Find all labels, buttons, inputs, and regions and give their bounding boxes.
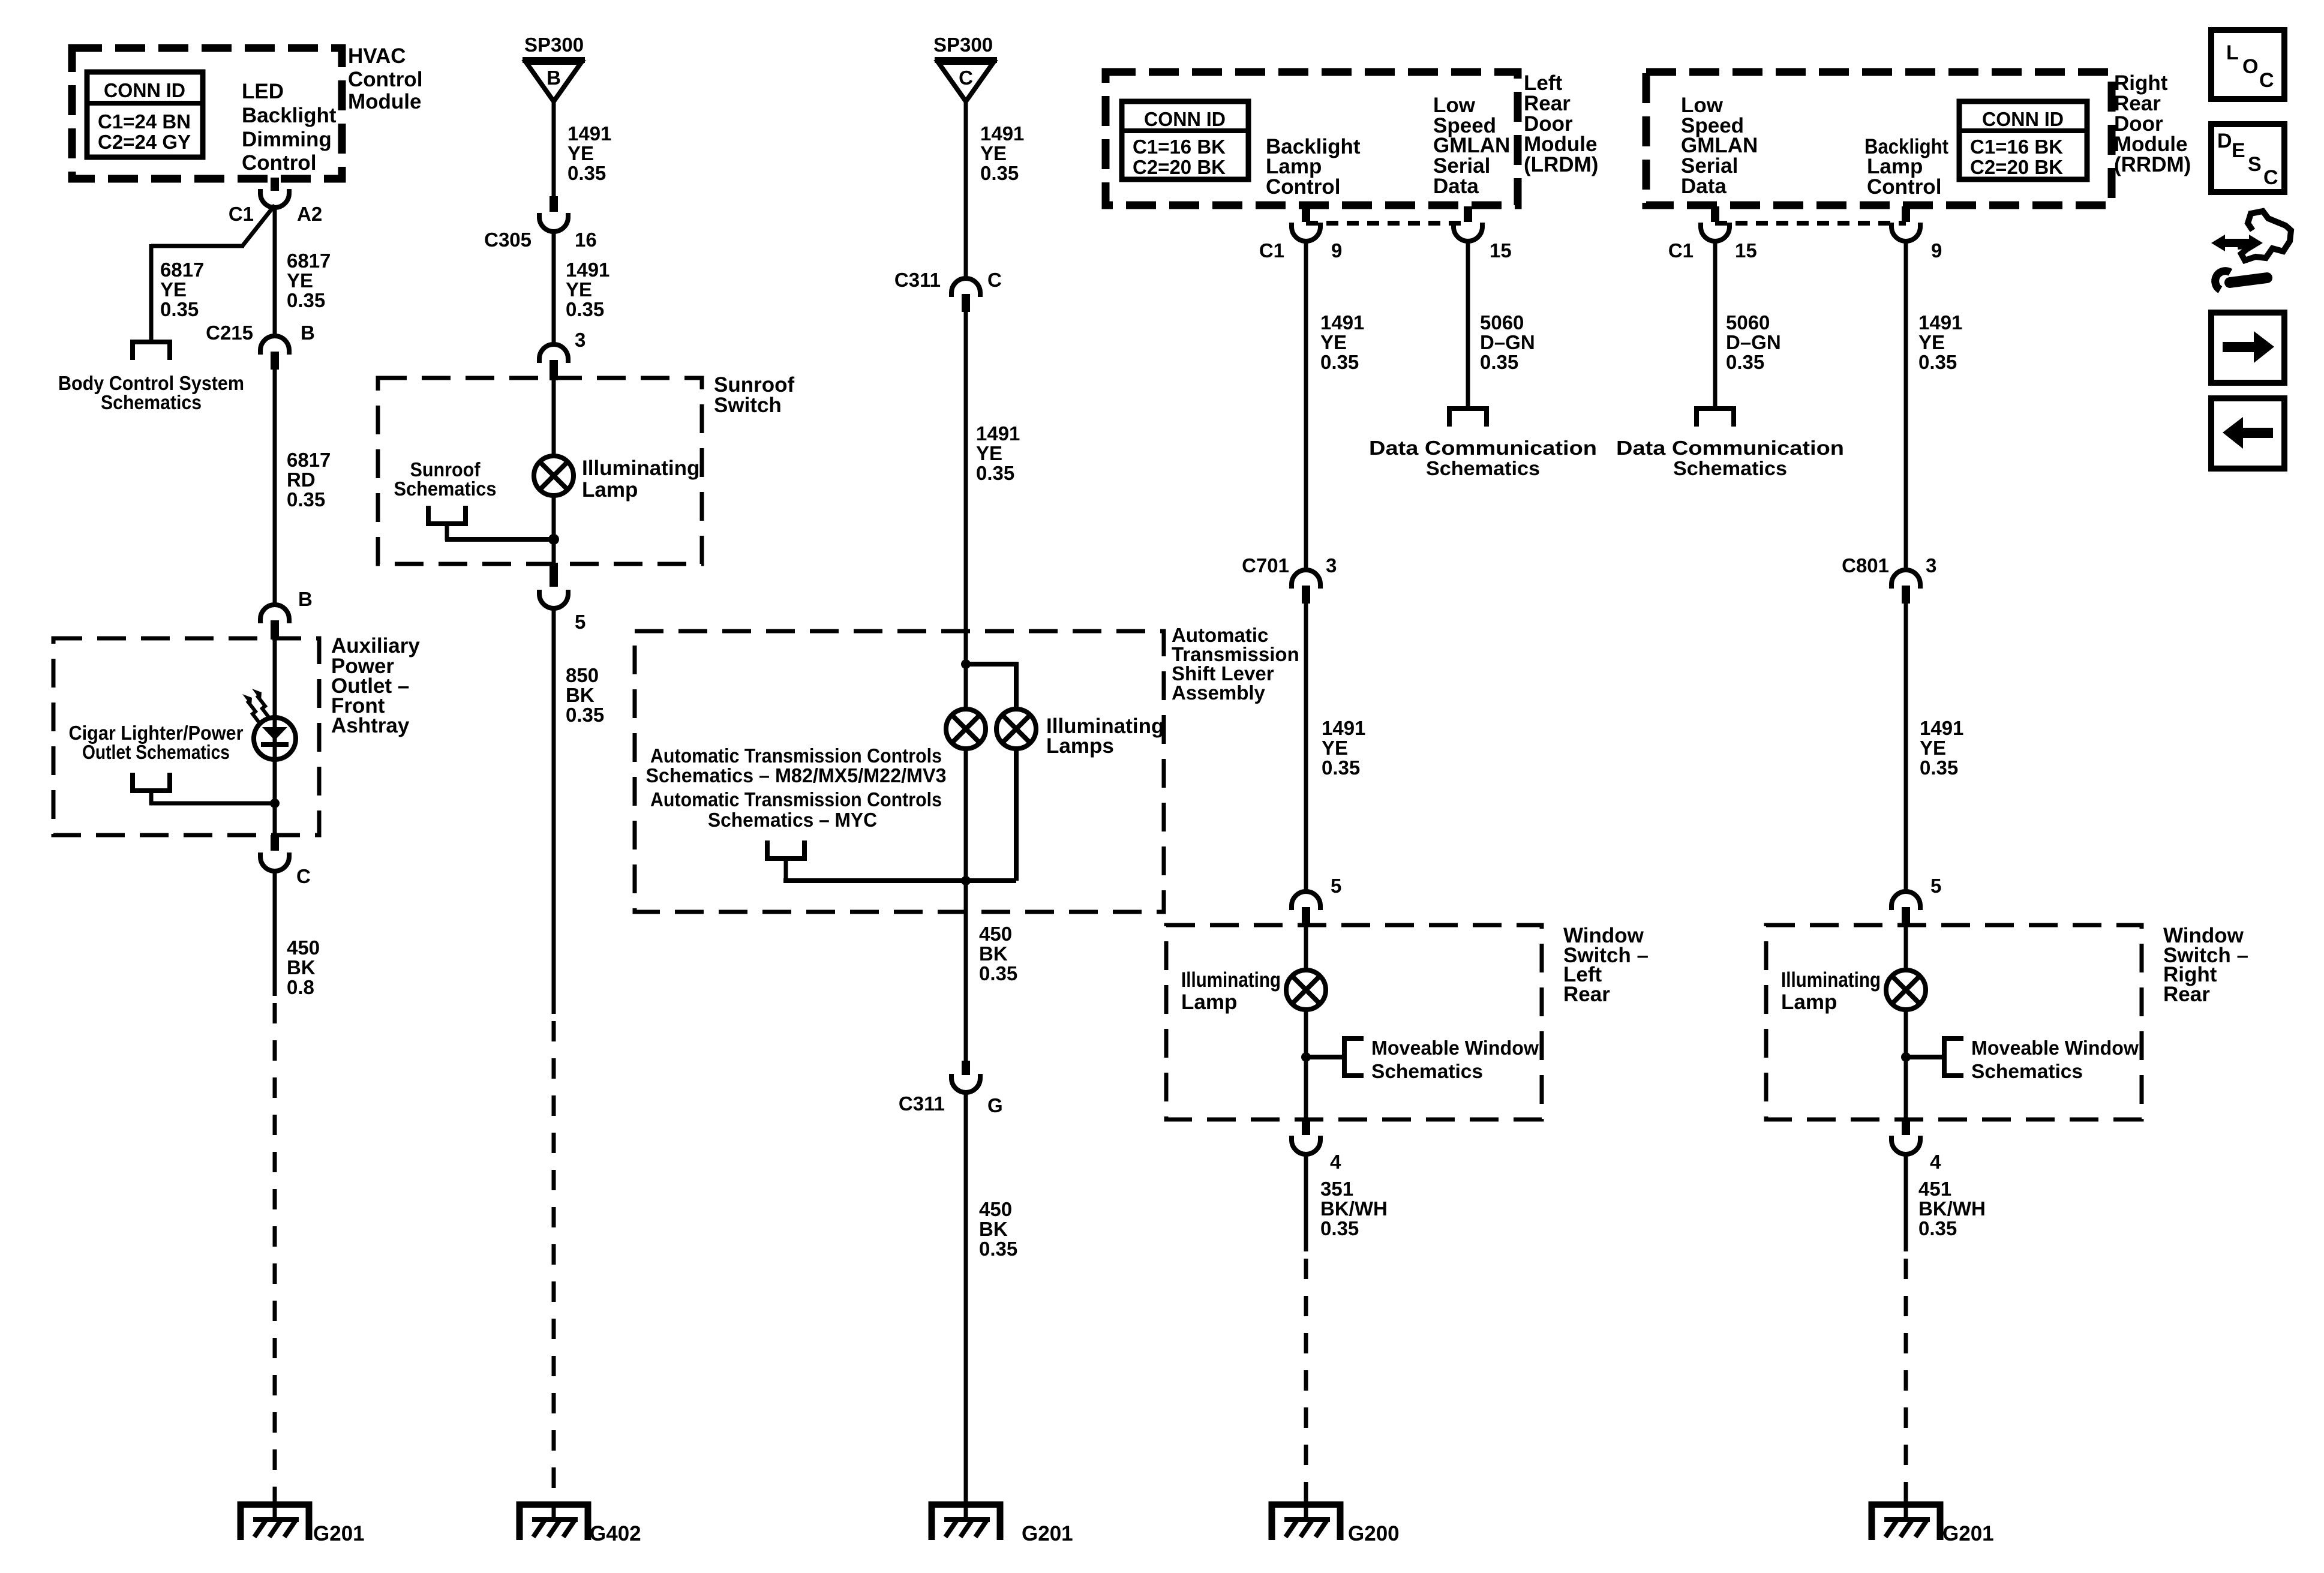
svg-text:Schematics – M82/MX5/M22/MV3: Schematics – M82/MX5/M22/MV3 xyxy=(646,764,947,786)
svg-text:1491: 1491 xyxy=(568,122,611,145)
svg-text:SP300: SP300 xyxy=(933,34,993,56)
svg-text:Moveable Window: Moveable Window xyxy=(1371,1037,1539,1059)
svg-text:C1=16 BK: C1=16 BK xyxy=(1970,136,2063,158)
svg-text:G402: G402 xyxy=(590,1522,641,1545)
svg-text:0.35: 0.35 xyxy=(287,488,325,511)
svg-text:G: G xyxy=(987,1094,1003,1116)
svg-text:0.35: 0.35 xyxy=(1480,351,1518,373)
svg-text:Assembly: Assembly xyxy=(1172,682,1266,704)
svg-text:BK: BK xyxy=(287,956,316,978)
svg-text:Outlet Schematics: Outlet Schematics xyxy=(82,741,230,763)
svg-text:LED: LED xyxy=(242,80,284,103)
svg-text:Module: Module xyxy=(348,90,421,113)
svg-text:YE: YE xyxy=(1320,331,1347,353)
svg-text:BK: BK xyxy=(979,1218,1008,1240)
svg-text:1491: 1491 xyxy=(980,122,1024,145)
svg-text:C: C xyxy=(2259,69,2274,92)
svg-text:C: C xyxy=(2263,166,2278,189)
svg-text:1491: 1491 xyxy=(1322,717,1365,739)
svg-text:G201: G201 xyxy=(313,1522,365,1545)
svg-text:BK: BK xyxy=(979,942,1008,965)
svg-text:6817: 6817 xyxy=(160,259,204,281)
svg-text:BK/WH: BK/WH xyxy=(1918,1197,1986,1220)
svg-text:Control: Control xyxy=(348,68,422,91)
svg-text:0.35: 0.35 xyxy=(160,298,199,320)
svg-text:6817: 6817 xyxy=(287,250,331,272)
svg-text:5060: 5060 xyxy=(1726,311,1770,334)
svg-text:16: 16 xyxy=(575,229,597,251)
svg-text:C1=16 BK: C1=16 BK xyxy=(1133,136,1226,158)
svg-text:0.35: 0.35 xyxy=(568,162,606,184)
svg-text:Control: Control xyxy=(1867,175,1941,199)
svg-text:C2=24 GY: C2=24 GY xyxy=(98,131,191,153)
svg-text:9: 9 xyxy=(1931,239,1942,262)
svg-text:Illuminating: Illuminating xyxy=(582,457,699,480)
svg-text:B: B xyxy=(301,322,315,344)
svg-text:450: 450 xyxy=(979,1198,1012,1220)
svg-text:Control: Control xyxy=(242,151,316,175)
svg-text:CONN ID: CONN ID xyxy=(104,79,185,101)
svg-text:C: C xyxy=(959,67,973,89)
svg-text:L: L xyxy=(2226,41,2239,64)
svg-text:YE: YE xyxy=(976,442,1002,464)
svg-text:0.35: 0.35 xyxy=(1322,757,1360,779)
svg-text:YE: YE xyxy=(566,278,592,301)
svg-text:O: O xyxy=(2242,55,2258,78)
svg-text:Schematics: Schematics xyxy=(1371,1060,1483,1082)
svg-text:C1: C1 xyxy=(229,203,254,225)
svg-text:C2=20 BK: C2=20 BK xyxy=(1970,156,2063,178)
svg-text:C1: C1 xyxy=(1668,239,1694,262)
svg-text:G200: G200 xyxy=(1348,1522,1400,1545)
svg-text:YE: YE xyxy=(287,269,313,292)
svg-text:0.35: 0.35 xyxy=(1726,351,1764,373)
svg-text:0.35: 0.35 xyxy=(1918,1217,1957,1239)
svg-text:Schematics: Schematics xyxy=(1426,457,1540,479)
svg-text:S: S xyxy=(2248,153,2262,176)
svg-text:Switch: Switch xyxy=(714,394,782,417)
svg-text:Schematics: Schematics xyxy=(1971,1060,2083,1082)
svg-text:Schematics: Schematics xyxy=(101,391,202,413)
svg-text:0.35: 0.35 xyxy=(1320,1217,1359,1239)
svg-text:G201: G201 xyxy=(1022,1522,1073,1545)
svg-text:0.8: 0.8 xyxy=(287,976,314,998)
svg-text:Schematics: Schematics xyxy=(394,478,497,500)
svg-text:450: 450 xyxy=(287,936,320,959)
svg-text:Ashtray: Ashtray xyxy=(331,714,410,737)
svg-text:1491: 1491 xyxy=(566,259,609,281)
svg-text:C1: C1 xyxy=(1259,239,1284,262)
svg-text:B: B xyxy=(547,67,561,89)
svg-text:C311: C311 xyxy=(894,269,941,291)
svg-text:5: 5 xyxy=(575,611,585,633)
svg-text:Illuminating: Illuminating xyxy=(1181,968,1281,992)
svg-text:0.35: 0.35 xyxy=(979,962,1017,984)
svg-text:C1=24 BN: C1=24 BN xyxy=(98,110,191,133)
svg-text:1491: 1491 xyxy=(1918,311,1962,334)
svg-text:CONN ID: CONN ID xyxy=(1982,108,2064,130)
svg-text:850: 850 xyxy=(566,664,599,686)
svg-text:Dimming: Dimming xyxy=(242,128,332,151)
svg-text:Rear: Rear xyxy=(1563,983,1610,1006)
svg-text:Automatic Transmission Control: Automatic Transmission Controls xyxy=(650,788,942,810)
svg-text:C801: C801 xyxy=(1842,554,1889,577)
svg-text:Automatic Transmission Control: Automatic Transmission Controls xyxy=(650,745,942,767)
svg-text:YE: YE xyxy=(980,142,1007,164)
svg-text:Lamp: Lamp xyxy=(1781,990,1837,1014)
svg-text:YE: YE xyxy=(160,278,187,301)
svg-text:YE: YE xyxy=(1322,737,1348,759)
svg-text:450: 450 xyxy=(979,923,1012,945)
svg-text:0.35: 0.35 xyxy=(566,704,604,726)
svg-text:0.35: 0.35 xyxy=(1920,757,1958,779)
svg-text:C305: C305 xyxy=(484,229,532,251)
svg-text:D–GN: D–GN xyxy=(1726,331,1781,353)
svg-text:C311: C311 xyxy=(899,1092,945,1115)
svg-text:0.35: 0.35 xyxy=(980,162,1019,184)
svg-text:B: B xyxy=(298,588,313,610)
svg-text:Data: Data xyxy=(1433,175,1479,198)
svg-text:351: 351 xyxy=(1320,1178,1353,1200)
svg-text:15: 15 xyxy=(1735,239,1757,262)
svg-text:1491: 1491 xyxy=(976,422,1020,445)
svg-text:Moveable Window: Moveable Window xyxy=(1971,1037,2139,1059)
svg-text:D–GN: D–GN xyxy=(1480,331,1535,353)
svg-text:451: 451 xyxy=(1918,1178,1951,1200)
svg-text:(RRDM): (RRDM) xyxy=(2114,153,2191,176)
svg-text:C: C xyxy=(987,269,1002,291)
svg-text:Schematics – MYC: Schematics – MYC xyxy=(708,809,877,831)
svg-text:C2=20 BK: C2=20 BK xyxy=(1133,156,1226,178)
svg-text:0.35: 0.35 xyxy=(287,289,325,311)
svg-text:Schematics: Schematics xyxy=(1673,457,1787,479)
svg-text:5: 5 xyxy=(1331,875,1341,897)
svg-text:0.35: 0.35 xyxy=(1320,351,1359,373)
svg-text:5060: 5060 xyxy=(1480,311,1524,334)
svg-text:4: 4 xyxy=(1930,1151,1941,1173)
svg-text:5: 5 xyxy=(1930,875,1941,897)
svg-text:CONN ID: CONN ID xyxy=(1144,108,1226,130)
svg-text:0.35: 0.35 xyxy=(1918,351,1957,373)
svg-text:9: 9 xyxy=(1331,239,1342,262)
svg-text:RD: RD xyxy=(287,469,316,491)
svg-text:3: 3 xyxy=(1326,554,1337,577)
svg-text:Lamps: Lamps xyxy=(1046,734,1114,758)
svg-text:Data Communication: Data Communication xyxy=(1369,437,1597,459)
svg-text:Lamp: Lamp xyxy=(582,478,638,502)
svg-text:3: 3 xyxy=(575,329,585,351)
svg-text:C215: C215 xyxy=(206,322,253,344)
svg-text:HVAC: HVAC xyxy=(348,44,406,68)
svg-text:Illuminating: Illuminating xyxy=(1781,968,1881,992)
svg-text:1491: 1491 xyxy=(1320,311,1364,334)
svg-text:YE: YE xyxy=(1918,331,1945,353)
svg-text:Control: Control xyxy=(1266,175,1340,199)
svg-text:A2: A2 xyxy=(297,203,322,225)
svg-text:15: 15 xyxy=(1490,239,1512,262)
svg-text:D: D xyxy=(2217,130,2232,152)
svg-text:0.35: 0.35 xyxy=(566,298,604,320)
svg-text:(LRDM): (LRDM) xyxy=(1524,153,1598,176)
svg-text:YE: YE xyxy=(1920,737,1946,759)
svg-text:SP300: SP300 xyxy=(524,34,584,56)
svg-text:0.35: 0.35 xyxy=(979,1238,1017,1260)
svg-text:1491: 1491 xyxy=(1920,717,1963,739)
svg-text:4: 4 xyxy=(1330,1151,1341,1173)
svg-text:G201: G201 xyxy=(1942,1522,1994,1545)
svg-text:6817: 6817 xyxy=(287,449,331,471)
svg-text:Backlight: Backlight xyxy=(242,104,337,127)
svg-text:Data Communication: Data Communication xyxy=(1616,437,1844,459)
svg-text:3: 3 xyxy=(1926,554,1936,577)
svg-text:YE: YE xyxy=(568,142,594,164)
svg-text:BK/WH: BK/WH xyxy=(1320,1197,1388,1220)
svg-text:E: E xyxy=(2232,139,2245,162)
svg-text:C: C xyxy=(296,865,311,887)
svg-text:Data: Data xyxy=(1681,175,1727,198)
svg-text:0.35: 0.35 xyxy=(976,462,1014,484)
svg-text:Rear: Rear xyxy=(2163,983,2210,1006)
svg-text:Lamp: Lamp xyxy=(1181,990,1237,1014)
svg-text:BK: BK xyxy=(566,684,594,706)
svg-text:C701: C701 xyxy=(1242,554,1289,577)
